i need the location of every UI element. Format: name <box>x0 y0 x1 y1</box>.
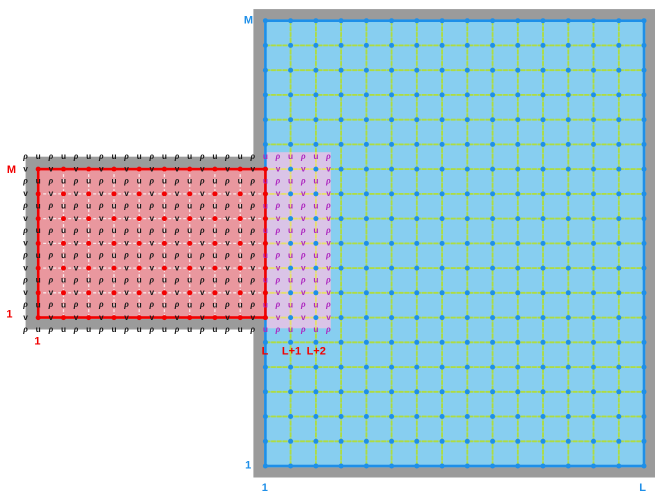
svg-text:ρ: ρ <box>73 250 79 260</box>
svg-text:u: u <box>263 324 268 334</box>
svg-text:ρ: ρ <box>148 324 154 334</box>
svg-text:u: u <box>288 225 293 235</box>
svg-text:u: u <box>288 299 293 309</box>
svg-text:u: u <box>162 200 167 210</box>
svg-text:v: v <box>225 262 230 272</box>
svg-text:u: u <box>111 250 116 260</box>
svg-text:L+1: L+1 <box>282 345 301 357</box>
svg-text:ρ: ρ <box>325 151 331 161</box>
svg-text:u: u <box>111 176 116 186</box>
svg-text:v: v <box>175 287 180 297</box>
svg-text:ρ: ρ <box>325 250 331 260</box>
svg-text:u: u <box>86 324 91 334</box>
svg-text:u: u <box>313 225 318 235</box>
svg-text:u: u <box>137 225 142 235</box>
svg-text:ρ: ρ <box>174 151 180 161</box>
svg-text:ρ: ρ <box>300 176 306 186</box>
svg-text:v: v <box>200 287 205 297</box>
svg-text:u: u <box>61 299 66 309</box>
svg-text:u: u <box>288 151 293 161</box>
svg-text:ρ: ρ <box>98 275 104 285</box>
svg-text:v: v <box>250 287 255 297</box>
svg-text:ρ: ρ <box>199 324 205 334</box>
svg-text:u: u <box>86 200 91 210</box>
svg-text:v: v <box>124 287 129 297</box>
svg-text:ρ: ρ <box>300 151 306 161</box>
svg-text:ρ: ρ <box>48 151 54 161</box>
svg-text:v: v <box>276 213 281 223</box>
svg-text:u: u <box>263 275 268 285</box>
svg-text:ρ: ρ <box>98 299 104 309</box>
svg-text:u: u <box>313 299 318 309</box>
svg-text:u: u <box>137 250 142 260</box>
svg-text:v: v <box>276 312 281 322</box>
svg-text:ρ: ρ <box>148 275 154 285</box>
svg-text:v: v <box>74 188 79 198</box>
svg-text:v: v <box>326 287 331 297</box>
svg-text:v: v <box>301 312 306 322</box>
svg-text:ρ: ρ <box>148 250 154 260</box>
svg-text:v: v <box>225 213 230 223</box>
svg-text:ρ: ρ <box>123 275 129 285</box>
svg-text:u: u <box>137 275 142 285</box>
svg-text:v: v <box>175 238 180 248</box>
svg-text:u: u <box>111 275 116 285</box>
svg-text:u: u <box>36 151 41 161</box>
svg-text:v: v <box>250 213 255 223</box>
svg-text:ρ: ρ <box>174 324 180 334</box>
svg-text:ρ: ρ <box>123 250 129 260</box>
svg-text:v: v <box>74 238 79 248</box>
svg-text:u: u <box>313 200 318 210</box>
svg-text:v: v <box>200 262 205 272</box>
svg-text:ρ: ρ <box>275 275 281 285</box>
svg-text:v: v <box>326 312 331 322</box>
svg-text:u: u <box>187 275 192 285</box>
svg-text:ρ: ρ <box>123 225 129 235</box>
svg-text:u: u <box>212 275 217 285</box>
svg-text:ρ: ρ <box>48 200 54 210</box>
svg-text:v: v <box>99 312 104 322</box>
svg-text:ρ: ρ <box>300 250 306 260</box>
svg-text:ρ: ρ <box>98 200 104 210</box>
svg-text:u: u <box>137 299 142 309</box>
svg-text:ρ: ρ <box>249 225 255 235</box>
svg-text:u: u <box>288 324 293 334</box>
svg-text:v: v <box>225 238 230 248</box>
svg-text:ρ: ρ <box>300 225 306 235</box>
svg-text:v: v <box>149 262 154 272</box>
svg-text:v: v <box>124 163 129 173</box>
svg-text:u: u <box>111 299 116 309</box>
svg-text:u: u <box>212 324 217 334</box>
svg-text:v: v <box>250 312 255 322</box>
svg-text:ρ: ρ <box>199 250 205 260</box>
svg-text:u: u <box>61 324 66 334</box>
svg-text:v: v <box>74 287 79 297</box>
svg-text:L: L <box>262 345 269 357</box>
svg-text:ρ: ρ <box>174 200 180 210</box>
svg-text:u: u <box>187 151 192 161</box>
svg-text:u: u <box>212 176 217 186</box>
svg-text:u: u <box>61 200 66 210</box>
svg-text:v: v <box>276 238 281 248</box>
svg-text:ρ: ρ <box>98 324 104 334</box>
svg-text:v: v <box>175 312 180 322</box>
svg-text:u: u <box>162 151 167 161</box>
svg-text:ρ: ρ <box>123 200 129 210</box>
svg-text:v: v <box>250 188 255 198</box>
svg-text:v: v <box>250 163 255 173</box>
svg-text:v: v <box>74 213 79 223</box>
svg-text:u: u <box>61 176 66 186</box>
svg-text:v: v <box>326 188 331 198</box>
svg-text:u: u <box>111 225 116 235</box>
svg-text:u: u <box>238 200 243 210</box>
svg-text:v: v <box>23 238 28 248</box>
svg-text:v: v <box>276 163 281 173</box>
svg-text:ρ: ρ <box>199 151 205 161</box>
svg-text:ρ: ρ <box>325 324 331 334</box>
svg-text:ρ: ρ <box>174 225 180 235</box>
svg-text:v: v <box>301 213 306 223</box>
svg-text:u: u <box>86 250 91 260</box>
svg-text:v: v <box>49 287 54 297</box>
svg-text:ρ: ρ <box>224 200 230 210</box>
svg-text:u: u <box>111 324 116 334</box>
svg-text:u: u <box>111 151 116 161</box>
svg-text:ρ: ρ <box>249 151 255 161</box>
svg-text:u: u <box>61 151 66 161</box>
svg-text:ρ: ρ <box>275 151 281 161</box>
svg-text:ρ: ρ <box>148 299 154 309</box>
svg-text:ρ: ρ <box>174 250 180 260</box>
svg-text:u: u <box>238 225 243 235</box>
svg-text:ρ: ρ <box>73 324 79 334</box>
svg-text:v: v <box>149 287 154 297</box>
svg-text:u: u <box>263 299 268 309</box>
svg-text:v: v <box>175 213 180 223</box>
svg-text:u: u <box>137 200 142 210</box>
svg-text:ρ: ρ <box>123 151 129 161</box>
svg-text:ρ: ρ <box>22 200 28 210</box>
svg-text:v: v <box>149 163 154 173</box>
svg-text:ρ: ρ <box>22 151 28 161</box>
svg-text:v: v <box>301 287 306 297</box>
svg-text:1: 1 <box>34 336 40 348</box>
svg-text:ρ: ρ <box>325 176 331 186</box>
svg-text:v: v <box>49 312 54 322</box>
svg-text:v: v <box>49 163 54 173</box>
svg-text:u: u <box>212 151 217 161</box>
svg-text:u: u <box>36 299 41 309</box>
svg-text:u: u <box>263 151 268 161</box>
svg-text:L+2: L+2 <box>307 345 326 357</box>
svg-text:ρ: ρ <box>22 299 28 309</box>
svg-text:ρ: ρ <box>275 324 281 334</box>
svg-text:ρ: ρ <box>224 250 230 260</box>
svg-text:ρ: ρ <box>249 200 255 210</box>
svg-text:v: v <box>124 188 129 198</box>
svg-text:v: v <box>276 262 281 272</box>
svg-text:u: u <box>61 275 66 285</box>
svg-text:ρ: ρ <box>249 250 255 260</box>
svg-text:ρ: ρ <box>48 275 54 285</box>
svg-text:u: u <box>137 176 142 186</box>
svg-text:ρ: ρ <box>73 275 79 285</box>
svg-text:ρ: ρ <box>300 324 306 334</box>
svg-text:ρ: ρ <box>73 200 79 210</box>
svg-text:v: v <box>326 238 331 248</box>
svg-text:u: u <box>187 200 192 210</box>
svg-text:v: v <box>276 287 281 297</box>
svg-text:ρ: ρ <box>123 324 129 334</box>
svg-text:u: u <box>137 151 142 161</box>
svg-text:ρ: ρ <box>249 176 255 186</box>
svg-text:ρ: ρ <box>48 299 54 309</box>
svg-text:v: v <box>301 262 306 272</box>
svg-text:v: v <box>99 287 104 297</box>
svg-text:M: M <box>244 15 253 27</box>
svg-text:v: v <box>225 312 230 322</box>
svg-text:ρ: ρ <box>174 275 180 285</box>
svg-text:ρ: ρ <box>48 176 54 186</box>
svg-text:ρ: ρ <box>224 225 230 235</box>
svg-text:ρ: ρ <box>199 200 205 210</box>
svg-text:v: v <box>99 213 104 223</box>
svg-text:ρ: ρ <box>325 299 331 309</box>
svg-text:ρ: ρ <box>174 299 180 309</box>
svg-text:v: v <box>250 262 255 272</box>
svg-text:v: v <box>23 262 28 272</box>
svg-text:ρ: ρ <box>300 275 306 285</box>
svg-text:v: v <box>124 312 129 322</box>
svg-text:u: u <box>86 176 91 186</box>
svg-text:u: u <box>263 225 268 235</box>
svg-text:ρ: ρ <box>325 225 331 235</box>
svg-text:v: v <box>175 262 180 272</box>
svg-text:u: u <box>187 299 192 309</box>
svg-text:v: v <box>175 163 180 173</box>
svg-text:ρ: ρ <box>275 200 281 210</box>
svg-text:ρ: ρ <box>148 200 154 210</box>
svg-text:u: u <box>238 299 243 309</box>
svg-text:L: L <box>639 482 646 494</box>
svg-text:u: u <box>238 275 243 285</box>
svg-text:u: u <box>288 250 293 260</box>
svg-text:ρ: ρ <box>249 299 255 309</box>
svg-text:u: u <box>86 225 91 235</box>
svg-text:ρ: ρ <box>275 250 281 260</box>
svg-text:u: u <box>187 324 192 334</box>
svg-text:ρ: ρ <box>224 176 230 186</box>
svg-text:ρ: ρ <box>224 151 230 161</box>
svg-text:ρ: ρ <box>199 299 205 309</box>
svg-text:ρ: ρ <box>73 225 79 235</box>
svg-text:v: v <box>23 188 28 198</box>
svg-text:ρ: ρ <box>148 176 154 186</box>
svg-text:ρ: ρ <box>148 151 154 161</box>
svg-text:u: u <box>313 151 318 161</box>
svg-text:v: v <box>149 188 154 198</box>
svg-text:v: v <box>200 213 205 223</box>
svg-text:u: u <box>313 176 318 186</box>
svg-text:v: v <box>326 213 331 223</box>
svg-text:u: u <box>86 299 91 309</box>
svg-text:v: v <box>250 238 255 248</box>
svg-text:ρ: ρ <box>98 151 104 161</box>
svg-text:u: u <box>36 225 41 235</box>
svg-text:ρ: ρ <box>22 250 28 260</box>
svg-text:u: u <box>36 200 41 210</box>
svg-text:ρ: ρ <box>48 324 54 334</box>
svg-text:v: v <box>200 163 205 173</box>
svg-text:u: u <box>187 225 192 235</box>
svg-text:ρ: ρ <box>199 176 205 186</box>
svg-text:u: u <box>162 324 167 334</box>
svg-text:ρ: ρ <box>123 299 129 309</box>
svg-text:1: 1 <box>6 309 12 321</box>
svg-text:v: v <box>99 262 104 272</box>
svg-text:v: v <box>225 163 230 173</box>
svg-text:v: v <box>124 213 129 223</box>
svg-text:v: v <box>175 188 180 198</box>
svg-text:v: v <box>49 213 54 223</box>
svg-text:ρ: ρ <box>224 275 230 285</box>
svg-text:u: u <box>238 151 243 161</box>
svg-text:ρ: ρ <box>275 176 281 186</box>
svg-text:u: u <box>238 176 243 186</box>
svg-text:ρ: ρ <box>73 176 79 186</box>
svg-text:v: v <box>124 262 129 272</box>
svg-text:ρ: ρ <box>98 250 104 260</box>
svg-text:1: 1 <box>245 460 251 472</box>
svg-text:v: v <box>326 163 331 173</box>
svg-text:ρ: ρ <box>22 324 28 334</box>
svg-text:ρ: ρ <box>148 225 154 235</box>
svg-text:v: v <box>301 163 306 173</box>
svg-text:v: v <box>74 163 79 173</box>
svg-text:v: v <box>276 188 281 198</box>
svg-text:u: u <box>162 225 167 235</box>
svg-text:u: u <box>36 250 41 260</box>
svg-text:u: u <box>137 324 142 334</box>
svg-text:ρ: ρ <box>73 151 79 161</box>
svg-text:v: v <box>74 312 79 322</box>
svg-text:u: u <box>238 324 243 334</box>
svg-text:u: u <box>212 250 217 260</box>
svg-text:ρ: ρ <box>199 275 205 285</box>
svg-text:u: u <box>162 250 167 260</box>
svg-text:v: v <box>326 262 331 272</box>
svg-text:u: u <box>86 275 91 285</box>
svg-text:u: u <box>313 275 318 285</box>
svg-text:u: u <box>187 176 192 186</box>
svg-text:ρ: ρ <box>325 200 331 210</box>
svg-text:v: v <box>23 312 28 322</box>
svg-text:v: v <box>49 188 54 198</box>
svg-text:ρ: ρ <box>325 275 331 285</box>
svg-text:1: 1 <box>262 482 268 494</box>
svg-text:ρ: ρ <box>249 324 255 334</box>
svg-text:ρ: ρ <box>48 225 54 235</box>
svg-text:v: v <box>124 238 129 248</box>
svg-text:u: u <box>263 176 268 186</box>
svg-text:u: u <box>111 200 116 210</box>
svg-text:u: u <box>162 176 167 186</box>
svg-text:ρ: ρ <box>22 225 28 235</box>
svg-text:u: u <box>263 200 268 210</box>
svg-text:ρ: ρ <box>22 275 28 285</box>
svg-text:u: u <box>162 299 167 309</box>
svg-text:v: v <box>149 213 154 223</box>
svg-text:u: u <box>288 275 293 285</box>
svg-text:v: v <box>149 312 154 322</box>
svg-text:u: u <box>36 275 41 285</box>
svg-text:M: M <box>7 164 16 176</box>
svg-text:u: u <box>61 225 66 235</box>
svg-text:v: v <box>225 287 230 297</box>
svg-text:ρ: ρ <box>98 225 104 235</box>
svg-text:ρ: ρ <box>174 176 180 186</box>
svg-text:v: v <box>99 163 104 173</box>
svg-text:ρ: ρ <box>249 275 255 285</box>
svg-text:ρ: ρ <box>275 225 281 235</box>
svg-text:v: v <box>74 262 79 272</box>
svg-text:u: u <box>263 250 268 260</box>
svg-text:ρ: ρ <box>73 299 79 309</box>
svg-text:v: v <box>23 163 28 173</box>
svg-text:ρ: ρ <box>98 176 104 186</box>
svg-text:u: u <box>187 250 192 260</box>
svg-text:v: v <box>49 262 54 272</box>
svg-text:u: u <box>288 176 293 186</box>
svg-text:v: v <box>99 238 104 248</box>
svg-text:u: u <box>212 200 217 210</box>
svg-text:v: v <box>301 238 306 248</box>
svg-text:u: u <box>313 324 318 334</box>
svg-text:u: u <box>61 250 66 260</box>
svg-text:ρ: ρ <box>300 200 306 210</box>
svg-text:v: v <box>200 188 205 198</box>
svg-text:u: u <box>313 250 318 260</box>
svg-text:v: v <box>149 238 154 248</box>
svg-text:ρ: ρ <box>275 299 281 309</box>
svg-text:v: v <box>23 287 28 297</box>
svg-text:v: v <box>225 188 230 198</box>
svg-text:ρ: ρ <box>224 299 230 309</box>
svg-text:u: u <box>238 250 243 260</box>
svg-text:v: v <box>99 188 104 198</box>
svg-text:u: u <box>36 324 41 334</box>
svg-text:u: u <box>288 200 293 210</box>
svg-text:ρ: ρ <box>123 176 129 186</box>
svg-text:ρ: ρ <box>48 250 54 260</box>
svg-text:u: u <box>212 299 217 309</box>
svg-text:u: u <box>162 275 167 285</box>
svg-text:v: v <box>301 188 306 198</box>
svg-text:v: v <box>49 238 54 248</box>
svg-text:ρ: ρ <box>22 176 28 186</box>
svg-text:ρ: ρ <box>199 225 205 235</box>
svg-text:u: u <box>36 176 41 186</box>
svg-text:v: v <box>200 238 205 248</box>
svg-text:ρ: ρ <box>300 299 306 309</box>
svg-text:u: u <box>86 151 91 161</box>
svg-text:ρ: ρ <box>224 324 230 334</box>
svg-text:v: v <box>200 312 205 322</box>
svg-text:u: u <box>212 225 217 235</box>
